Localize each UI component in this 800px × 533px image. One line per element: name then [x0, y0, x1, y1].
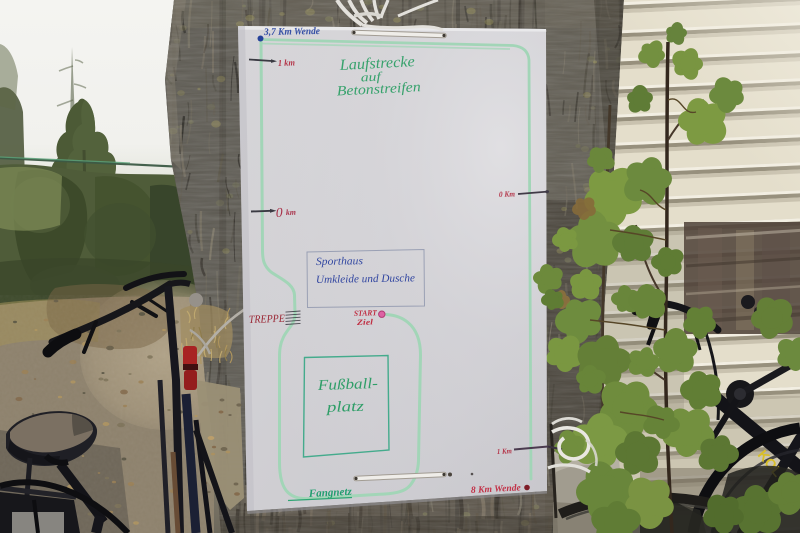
svg-text:platz: platz [325, 399, 364, 416]
svg-text:Sporthaus: Sporthaus [316, 255, 363, 268]
svg-text:Umkleide und Dusche: Umkleide und Dusche [316, 272, 415, 286]
svg-text:TREPPE: TREPPE [249, 313, 286, 326]
svg-text:Ziel: Ziel [356, 317, 374, 327]
svg-text:3,7 Km Wende: 3,7 Km Wende [263, 26, 321, 38]
svg-text:0: 0 [276, 205, 284, 220]
svg-text:km: km [286, 208, 296, 217]
svg-text:1 km: 1 km [278, 57, 295, 68]
svg-text:START: START [354, 308, 378, 318]
svg-text:1 Km: 1 Km [497, 446, 513, 456]
svg-text:0 Km: 0 Km [499, 189, 515, 199]
svg-text:Fußball-: Fußball- [316, 376, 378, 394]
